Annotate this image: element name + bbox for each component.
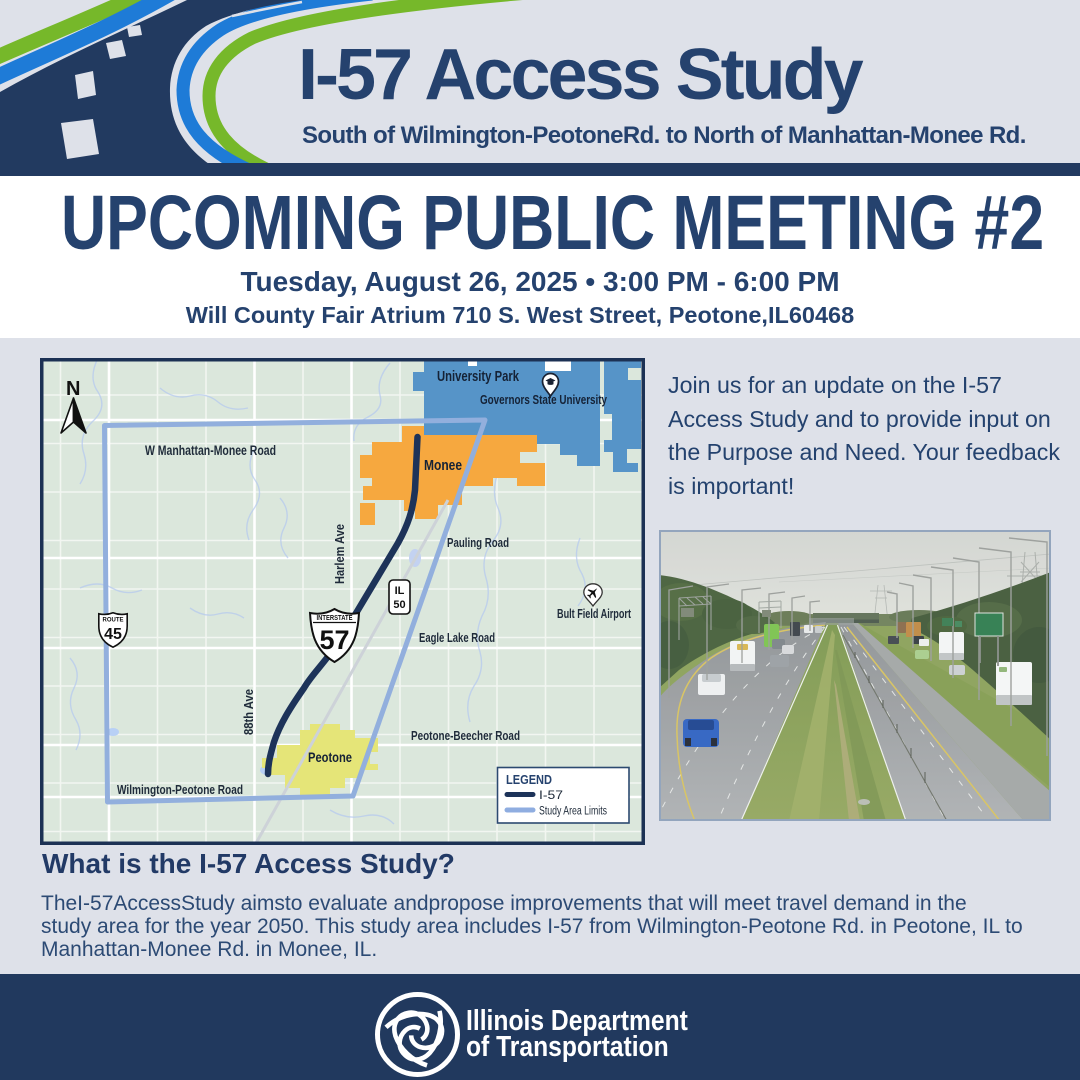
svg-text:I-57: I-57 — [539, 790, 563, 802]
svg-text:Eagle Lake Road: Eagle Lake Road — [419, 630, 495, 645]
svg-text:INTERSTATE: INTERSTATE — [317, 615, 353, 622]
svg-text:Monee: Monee — [424, 457, 462, 474]
svg-text:Pauling Road: Pauling Road — [447, 535, 509, 550]
svg-text:N: N — [66, 378, 80, 400]
svg-text:Harlem Ave: Harlem Ave — [332, 524, 347, 584]
svg-text:Peotone-Beecher Road: Peotone-Beecher Road — [411, 728, 520, 743]
svg-text:University Park: University Park — [437, 369, 520, 385]
svg-text:Governors State University: Governors State University — [480, 393, 607, 407]
svg-text:Study Area Limits: Study Area Limits — [539, 806, 607, 818]
svg-text:Peotone: Peotone — [308, 749, 352, 765]
svg-text:Bult Field Airport: Bult Field Airport — [557, 607, 632, 621]
svg-text:88th Ave: 88th Ave — [241, 689, 256, 735]
svg-text:45: 45 — [104, 626, 122, 643]
svg-text:IL: IL — [395, 585, 405, 597]
svg-text:57: 57 — [319, 625, 349, 655]
svg-text:ROUTE: ROUTE — [103, 618, 124, 624]
svg-text:50: 50 — [393, 599, 405, 611]
svg-text:W Manhattan-Monee Road: W Manhattan-Monee Road — [145, 443, 276, 458]
svg-text:LEGEND: LEGEND — [506, 773, 552, 787]
svg-text:Wilmington-Peotone Road: Wilmington-Peotone Road — [117, 782, 243, 797]
